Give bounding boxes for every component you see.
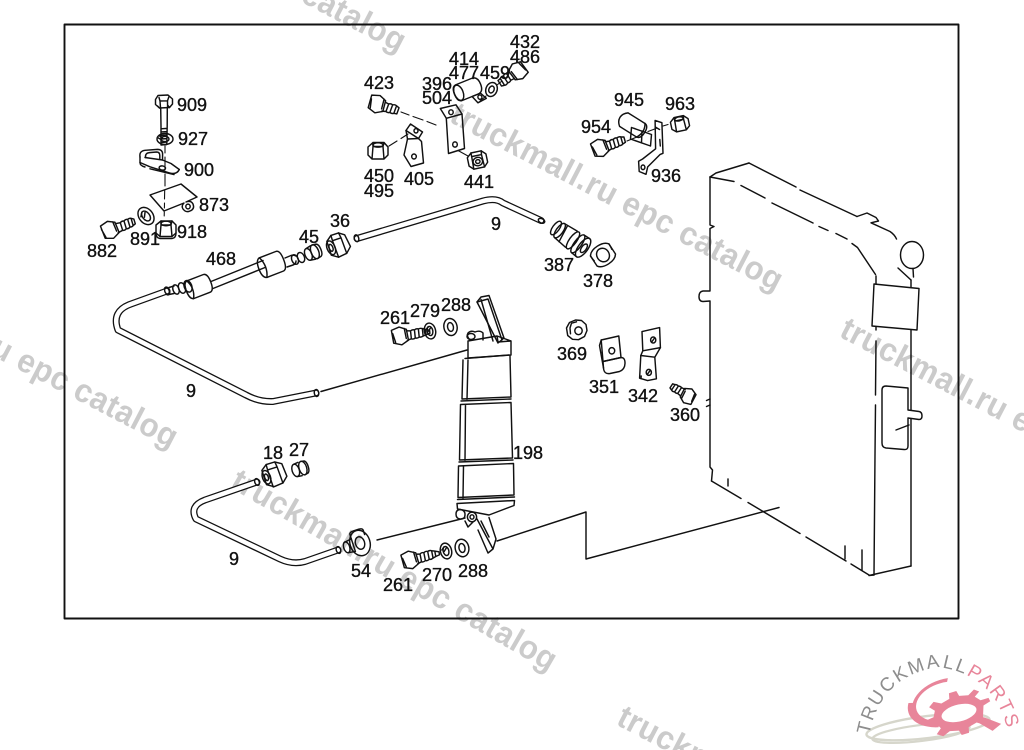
svg-text:486: 486 bbox=[510, 47, 540, 67]
svg-text:261: 261 bbox=[380, 308, 410, 328]
svg-text:468: 468 bbox=[206, 249, 236, 269]
svg-text:936: 936 bbox=[651, 166, 681, 186]
svg-text:504: 504 bbox=[422, 88, 452, 108]
svg-text:18: 18 bbox=[263, 443, 283, 463]
svg-text:288: 288 bbox=[441, 295, 471, 315]
svg-text:873: 873 bbox=[199, 195, 229, 215]
svg-text:927: 927 bbox=[178, 129, 208, 149]
svg-text:405: 405 bbox=[404, 169, 434, 189]
svg-text:270: 270 bbox=[422, 565, 452, 585]
svg-text:54: 54 bbox=[351, 561, 371, 581]
svg-text:342: 342 bbox=[628, 386, 658, 406]
svg-text:198: 198 bbox=[513, 443, 543, 463]
svg-text:351: 351 bbox=[589, 377, 619, 397]
svg-text:495: 495 bbox=[364, 181, 394, 201]
svg-text:279: 279 bbox=[410, 301, 440, 321]
svg-text:288: 288 bbox=[458, 561, 488, 581]
svg-text:truckmall.ru epc catalog: truckmall.ru epc catalog bbox=[835, 309, 1024, 513]
svg-text:423: 423 bbox=[364, 73, 394, 93]
svg-text:truckmall.ru epc catalog: truckmall.ru epc catalog bbox=[445, 94, 790, 298]
svg-text:360: 360 bbox=[670, 405, 700, 425]
svg-text:truckmall.ru epc catalog: truckmall.ru epc catalog bbox=[68, 0, 413, 59]
svg-text:900: 900 bbox=[184, 160, 214, 180]
svg-text:963: 963 bbox=[665, 94, 695, 114]
svg-text:261: 261 bbox=[383, 575, 413, 595]
svg-text:477: 477 bbox=[449, 63, 479, 83]
svg-text:369: 369 bbox=[557, 344, 587, 364]
svg-text:459: 459 bbox=[480, 63, 510, 83]
svg-text:45: 45 bbox=[299, 227, 319, 247]
svg-text:909: 909 bbox=[177, 95, 207, 115]
svg-text:954: 954 bbox=[581, 117, 611, 137]
svg-text:891: 891 bbox=[130, 229, 160, 249]
svg-text:441: 441 bbox=[464, 172, 494, 192]
svg-text:9: 9 bbox=[186, 381, 196, 401]
svg-text:27: 27 bbox=[289, 440, 309, 460]
svg-text:9: 9 bbox=[229, 549, 239, 569]
svg-text:918: 918 bbox=[177, 222, 207, 242]
svg-text:36: 36 bbox=[330, 211, 350, 231]
svg-text:9: 9 bbox=[491, 214, 501, 234]
svg-text:945: 945 bbox=[614, 90, 644, 110]
svg-text:882: 882 bbox=[87, 241, 117, 261]
svg-text:378: 378 bbox=[583, 271, 613, 291]
svg-text:387: 387 bbox=[544, 255, 574, 275]
